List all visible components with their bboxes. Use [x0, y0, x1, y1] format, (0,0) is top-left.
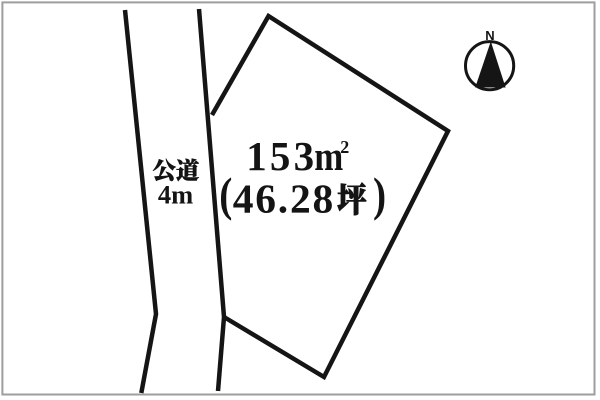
- svg-text:2: 2: [340, 137, 349, 157]
- svg-text:(: (: [219, 169, 232, 221]
- svg-text:): ): [373, 169, 386, 221]
- svg-text:153: 153: [246, 133, 317, 179]
- svg-text:m: m: [314, 134, 343, 179]
- svg-text:4m: 4m: [158, 180, 193, 210]
- svg-text:46.28: 46.28: [233, 176, 335, 222]
- svg-text:N: N: [485, 28, 494, 43]
